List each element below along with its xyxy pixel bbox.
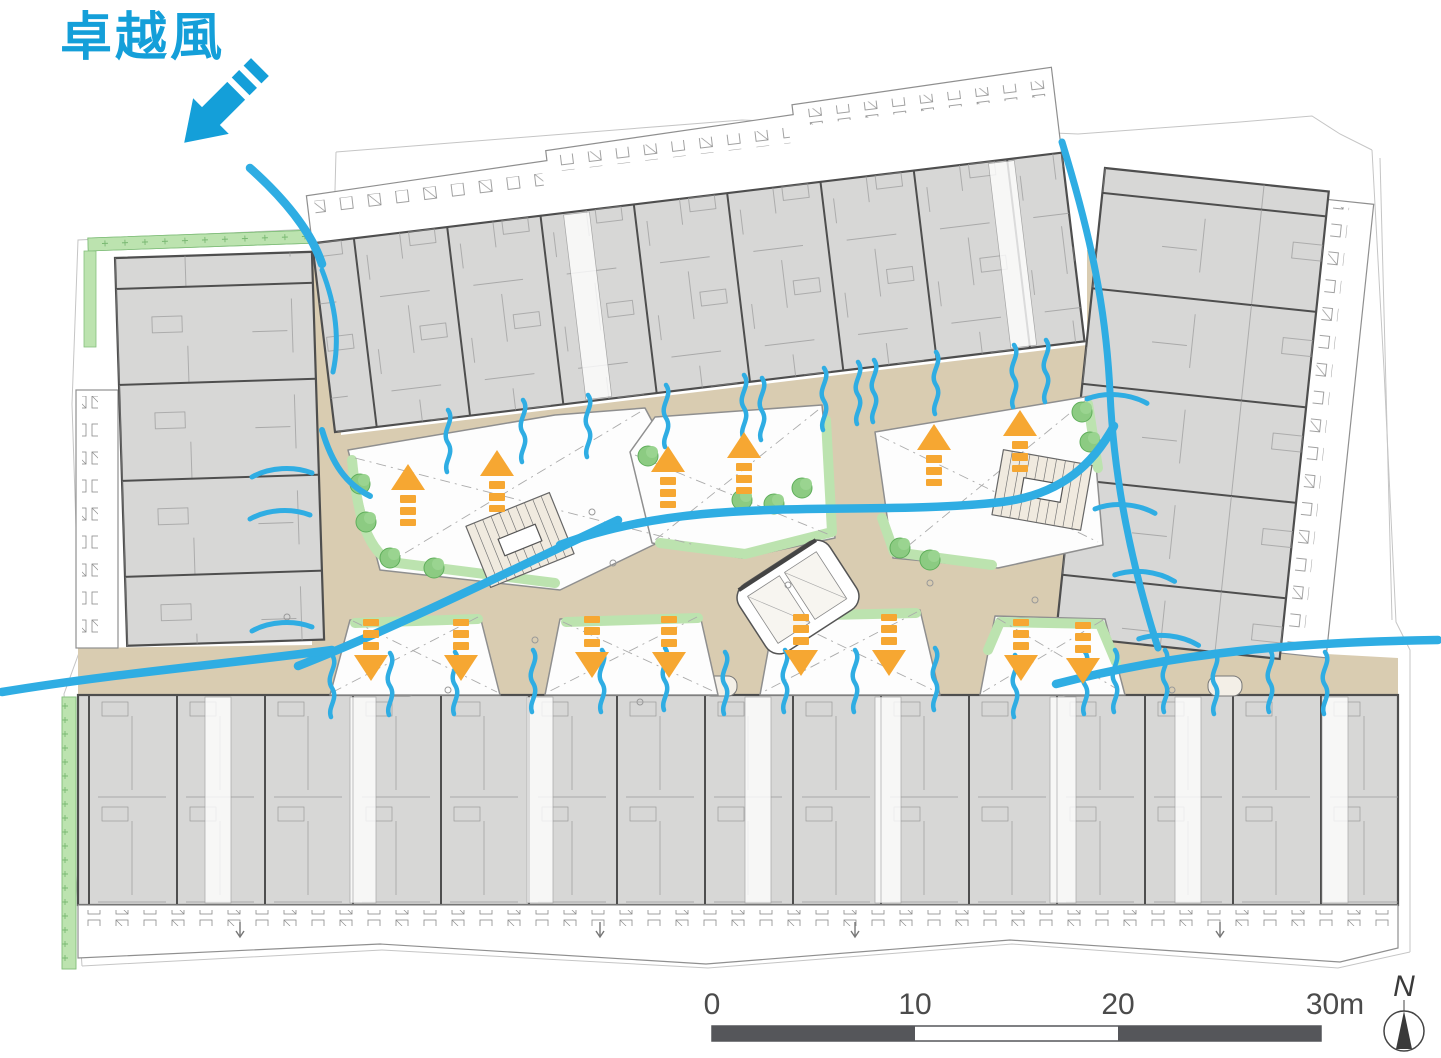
site-plan: 0 10 20 30m N 卓越風 — [0, 0, 1441, 1058]
scale-tick-10: 10 — [898, 988, 931, 1021]
scale-tick-0: 0 — [704, 988, 721, 1021]
scale-tick-20: 20 — [1101, 988, 1134, 1021]
north-arrow: N — [1384, 970, 1424, 1051]
building-west-slab — [76, 252, 324, 648]
prevailing-wind-label: 卓越風 — [60, 10, 225, 67]
north-label: N — [1393, 970, 1415, 1003]
building-east-slab — [1056, 168, 1375, 664]
plan-svg: 0 10 20 30m N — [0, 0, 1441, 1058]
scale-tick-30m: 30m — [1306, 988, 1364, 1021]
scale-bar: 0 10 20 30m — [704, 988, 1365, 1041]
void-bottom-2 — [545, 615, 718, 695]
building-south-row — [78, 676, 1398, 964]
